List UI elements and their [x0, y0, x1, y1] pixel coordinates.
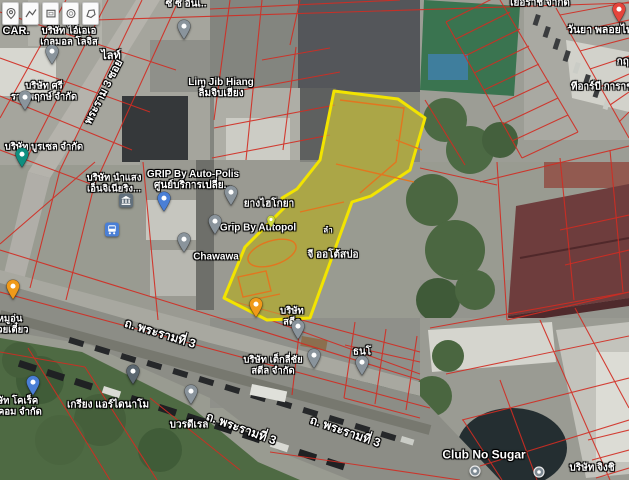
highlighted-parcel[interactable] [0, 0, 629, 480]
pin-jingchi-dot[interactable] [533, 465, 545, 480]
pin-company-teklichai[interactable] [307, 348, 322, 374]
pin-wanya-red[interactable] [612, 2, 627, 28]
pin-company-iae[interactable] [45, 44, 60, 70]
bus-stop-icon[interactable] [105, 223, 119, 242]
polygon-tool-button[interactable] [82, 2, 99, 25]
bank-icon[interactable] [119, 194, 133, 213]
pin-bowondee[interactable] [184, 384, 199, 410]
pin-club-no-sugar-dot[interactable] [469, 464, 481, 480]
pin-thano[interactable] [355, 355, 370, 381]
rectangle-tool-button[interactable] [42, 2, 59, 25]
pin-blue-poi[interactable] [157, 191, 172, 217]
pin-grip-autopol[interactable] [208, 214, 223, 240]
pin-teal-poi[interactable] [15, 147, 30, 173]
map-viewport[interactable]: CAR.บริษัท ไอ์เอเอ เกลมอล โลจิสซี ซี อิน… [0, 0, 629, 480]
pin-company-correct[interactable] [26, 375, 41, 401]
pin-cc-inter[interactable] [177, 19, 192, 45]
polyline-tool-button[interactable] [22, 2, 39, 25]
pin-kriang-dynamo[interactable] [126, 364, 141, 390]
pin-company-sri[interactable] [18, 90, 33, 116]
pin-mini-green[interactable] [267, 215, 276, 233]
drawing-toolbar [2, 2, 99, 25]
circle-tool-button[interactable] [62, 2, 79, 25]
pin-yang-hiko[interactable] [224, 185, 239, 211]
parcel-boundary[interactable] [224, 91, 425, 320]
pin-muun-noodle[interactable] [6, 279, 21, 305]
pin-chawawa[interactable] [177, 232, 192, 258]
pin-company-steel[interactable] [291, 319, 306, 345]
marker-tool-button[interactable] [2, 2, 19, 25]
pin-parcel-orange[interactable] [249, 297, 264, 323]
